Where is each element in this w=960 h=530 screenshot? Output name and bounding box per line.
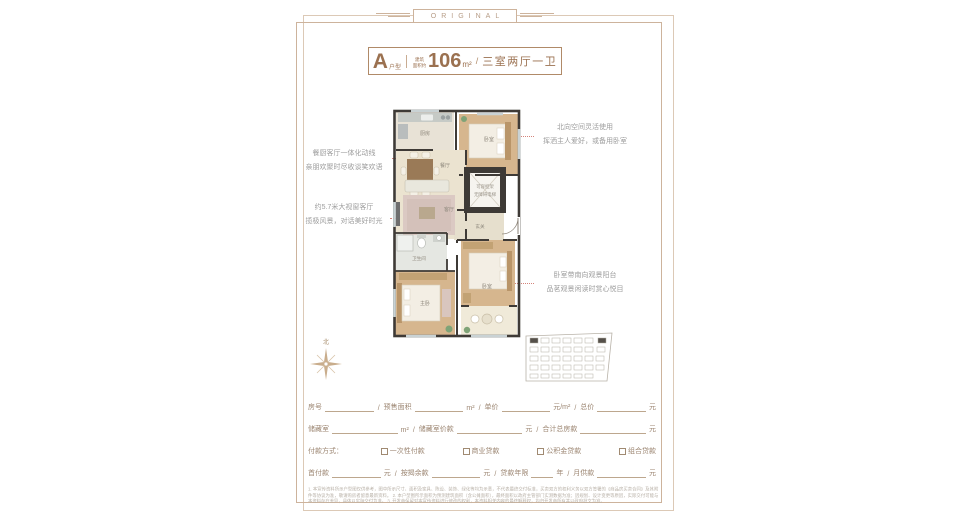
pillow — [500, 257, 506, 267]
pillow — [500, 271, 506, 281]
elevator-label-2: 无障碍电梯 — [474, 191, 497, 198]
unit-yuan: 元 — [483, 468, 490, 478]
original-banner: ORIGINAL — [413, 9, 517, 23]
entry-label: 玄关 — [475, 223, 485, 230]
bed-south-headboard — [507, 251, 512, 291]
banner-deco-line — [376, 13, 410, 14]
title-divider — [406, 55, 407, 68]
blank-storage-area[interactable] — [332, 425, 398, 434]
field-label-loan-term: 贷款年限 — [500, 468, 528, 478]
master-bed-headboard — [397, 283, 402, 323]
master-bedroom-label: 主卧 — [420, 300, 430, 307]
separator: / — [412, 427, 416, 434]
unit-m2: m² — [401, 427, 409, 434]
field-label-payment-method: 付款方式： — [308, 446, 343, 456]
separator: / — [493, 471, 497, 478]
separator: / — [573, 405, 577, 412]
sink — [437, 236, 442, 241]
building-key-plan — [524, 331, 614, 383]
toilet — [418, 238, 426, 248]
separator: / — [566, 471, 570, 478]
banner-deco-line — [520, 13, 554, 14]
kitchen-sink — [421, 115, 433, 121]
unit-type-letter: A — [373, 51, 388, 72]
plant — [446, 326, 453, 333]
blank-monthly-payment[interactable] — [597, 469, 646, 478]
dining-label: 餐厅 — [440, 162, 450, 169]
shower — [397, 235, 413, 251]
field-label-unit-price: 单价 — [485, 402, 499, 412]
compass-center — [324, 362, 328, 366]
plant — [464, 327, 470, 333]
unit-year: 年 — [556, 468, 563, 478]
original-banner-text: ORIGINAL — [431, 13, 504, 20]
layout-description: 三室两厅一卫 — [482, 53, 557, 69]
field-label-monthly-payment: 月供款 — [573, 468, 594, 478]
bedroom-south-label: 卧室 — [482, 283, 492, 290]
unit-m2: m² — [466, 405, 474, 412]
field-label-storage: 储藏室 — [308, 424, 329, 434]
form-row-price: 房号 / 预售面积 m² / 单价 元/m² / 总价 元 — [308, 402, 656, 412]
desk — [463, 293, 471, 303]
annotation-dining-kitchen: 餐厨客厅一体化动线 亲朋欢聚时尽收谈笑欢语 — [298, 147, 390, 175]
disclaimer-text: 1. 本宣传资料所示户型图仅供参考，图中所示尺寸、面积及家具、陈设、装饰、绿化等… — [308, 487, 658, 505]
title-slash: / — [476, 56, 479, 66]
south-wardrobe — [463, 242, 493, 249]
option-commercial-loan[interactable]: 商业贷款 — [463, 446, 500, 456]
blank-grand-total[interactable] — [580, 425, 646, 434]
blank-presale-area[interactable] — [415, 403, 464, 412]
unit-title-box: A 户型 建筑 面积约 106 m² / 三室两厅一卫 — [368, 47, 562, 75]
kitchen-label: 厨房 — [420, 130, 430, 137]
unit-yuan: 元 — [649, 424, 656, 434]
field-label-mortgage-balance: 按揭余款 — [401, 468, 429, 478]
pillow — [497, 143, 504, 154]
blank-unit-price[interactable] — [502, 403, 551, 412]
fridge — [398, 124, 408, 139]
sofa — [405, 180, 449, 192]
blank-mortgage-balance[interactable] — [432, 469, 481, 478]
unit-yuan: 元 — [649, 468, 656, 478]
dining-chair — [434, 167, 439, 175]
area-value: 106 — [428, 51, 461, 71]
balcony-table — [482, 314, 492, 324]
floorplan-drawing: 可容担架 无障碍电梯 — [391, 107, 524, 340]
blank-total-price[interactable] — [597, 403, 646, 412]
separator: / — [394, 471, 398, 478]
checkbox-lump-sum[interactable] — [381, 448, 388, 455]
bed-north-headboard — [505, 122, 511, 160]
form-row-storage: 储藏室 m² / 储藏室价款 元 / 合计总房款 元 — [308, 424, 656, 434]
dining-chair — [401, 167, 406, 175]
field-label-room-number: 房号 — [308, 402, 322, 412]
floorplan-flyer-page: ORIGINAL A 户型 建筑 面积约 106 m² / 三室两厅一卫 餐厨客… — [0, 0, 960, 530]
blank-room-number[interactable] — [325, 403, 374, 412]
dining-chair — [422, 152, 430, 158]
blank-down-payment[interactable] — [332, 469, 381, 478]
field-label-storage-price: 储藏室价款 — [419, 424, 454, 434]
checkbox-provident-fund-loan[interactable] — [537, 448, 544, 455]
checkbox-combined-loan[interactable] — [619, 448, 626, 455]
unit-yuan: 元 — [649, 402, 656, 412]
pillow — [404, 305, 410, 316]
blank-loan-term[interactable] — [531, 469, 553, 478]
tv-cabinet — [396, 202, 400, 226]
separator: / — [377, 405, 381, 412]
elevator-label-1: 可容担架 — [476, 183, 494, 190]
separator: / — [478, 405, 482, 412]
master-wardrobe — [399, 273, 447, 280]
form-row-payment-method: 付款方式： 一次性付款 商业贷款 公积金贷款 组合贷款 — [308, 446, 656, 456]
bedroom-north-label: 卧室 — [484, 136, 494, 143]
option-lump-sum[interactable]: 一次性付款 — [381, 446, 425, 456]
annotation-living-window: 约5.7米大视窗客厅 揽极风景，对话美好时光 — [296, 201, 392, 229]
stove-burner — [441, 115, 445, 119]
checkbox-commercial-loan[interactable] — [463, 448, 470, 455]
coffee-table — [419, 207, 435, 219]
blank-storage-price[interactable] — [457, 425, 523, 434]
field-label-grand-total: 合计总房款 — [542, 424, 577, 434]
unit-yuan: 元 — [525, 424, 532, 434]
area-prefix: 建筑 面积约 — [412, 57, 427, 69]
plant — [461, 116, 467, 122]
separator: / — [535, 427, 539, 434]
dining-chair — [410, 152, 418, 158]
living-label: 客厅 — [444, 206, 454, 213]
master-rug — [442, 289, 451, 317]
pillow — [404, 289, 410, 300]
unit-yuan: 元 — [384, 468, 391, 478]
form-row-mortgage: 首付款 元 / 按揭余款 元 / 贷款年限 年 / 月供款 元 — [308, 468, 656, 478]
field-label-down-payment: 首付款 — [308, 468, 329, 478]
toilet-tank — [417, 234, 426, 238]
banner-deco-line — [520, 16, 542, 17]
banner-deco-line — [388, 16, 410, 17]
unit-type-word: 户型 — [389, 62, 401, 71]
pillow — [497, 128, 504, 139]
balcony-chair — [495, 315, 503, 323]
balcony-chair — [471, 315, 479, 323]
area-unit: m² — [462, 60, 471, 69]
annotation-north-room: 北向空间灵活使用 挥洒主人爱好，或备用卧室 — [534, 121, 636, 149]
bathroom-label: 卫生间 — [412, 255, 426, 262]
stove-burner — [446, 115, 450, 119]
option-combined-loan[interactable]: 组合贷款 — [619, 446, 656, 456]
compass-north-label: 北 — [323, 338, 329, 346]
compass: 北 — [310, 336, 342, 382]
entry-door-arc — [502, 218, 518, 234]
annotation-south-balcony: 卧室带南向观景阳台 品茗观景闲读时赏心悦目 — [534, 269, 636, 297]
field-label-presale-area: 预售面积 — [384, 402, 412, 412]
option-provident-fund-loan[interactable]: 公积金贷款 — [537, 446, 581, 456]
unit-yuan-m2: 元/m² — [553, 402, 570, 412]
field-label-total-price: 总价 — [580, 402, 594, 412]
